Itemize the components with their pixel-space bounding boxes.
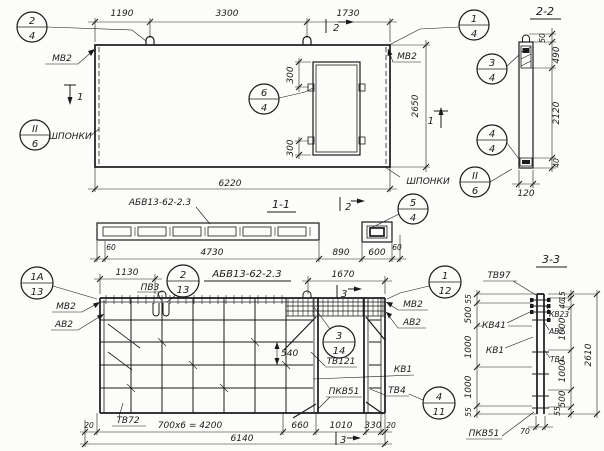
callout-1-4: 1 4 — [389, 10, 489, 45]
callout-num: 3 — [489, 58, 495, 69]
section-3-3: 3-3 55 500 1000 1000 55 15 40 1000 1000 … — [464, 253, 600, 439]
dim-2120: 2120 — [552, 101, 562, 124]
callout-num: II — [32, 124, 38, 135]
callout-num: 5 — [410, 198, 416, 209]
leader-line — [53, 286, 97, 299]
dim-120: 120 — [517, 189, 534, 199]
arrowhead — [88, 49, 95, 56]
label-text: АВ2 — [54, 320, 73, 330]
label-pkv51-elev: ПКВ51 — [317, 387, 362, 410]
door-opening-inner — [316, 65, 357, 152]
dim-660: 660 — [291, 421, 308, 431]
label-tv97: ТВ97 — [483, 271, 536, 295]
callout-num: 1 — [471, 14, 477, 25]
panel-mark-label: АБВ13-62-2.3 — [128, 198, 191, 208]
extension-lines — [95, 167, 390, 192]
door-opening — [313, 62, 360, 155]
dim-3300: 3300 — [216, 9, 239, 19]
reinforcement-elevation: 1130 1670 АБВ13-62-2.3 3 1А 13 МВ2 АВ2 — [21, 265, 461, 447]
dim-1190: 1190 — [111, 9, 134, 19]
dim-55-right: 55 — [553, 406, 562, 416]
callout-den: 6 — [32, 139, 38, 150]
label-mv2-elev-right: МВ2 — [386, 300, 428, 310]
plan-view: 1190 3300 1730 2 6220 2650 300 300 2 4 — [17, 9, 512, 197]
label-kv1-33: КВ1 — [486, 337, 533, 356]
callout-den: 6 — [472, 186, 478, 197]
label-text: АВ2 — [548, 327, 564, 336]
callout-5-4: 5 4 — [371, 194, 428, 228]
leader-line — [314, 307, 330, 329]
drawing-canvas: 1190 3300 1730 2 6220 2650 300 300 2 4 — [0, 0, 604, 451]
panel-outline — [95, 45, 390, 167]
end-block-void — [370, 228, 384, 236]
callout-shponki-right: ШПОНКИ II 6 — [385, 167, 512, 197]
cage-rungs — [532, 300, 549, 408]
label-shponki: ШПОНКИ — [406, 177, 450, 187]
extension-lines — [295, 62, 311, 155]
leader-line — [507, 55, 519, 66]
extension-lines — [390, 45, 430, 167]
dim-1730: 1730 — [337, 9, 360, 19]
section-marker-2: 2 — [340, 197, 365, 213]
dim-55-top: 55 — [464, 294, 473, 304]
section-marker-1-right: 1 — [428, 107, 448, 128]
callout-den: 11 — [433, 407, 446, 418]
dim-300-top: 300 — [286, 66, 296, 83]
label-text: ТВ4 — [550, 355, 565, 364]
label-mv2-left: МВ2 — [45, 49, 95, 64]
label-text: МВ2 — [397, 52, 417, 62]
callout-num: 3 — [336, 331, 342, 342]
core-void — [103, 227, 131, 236]
callout-1a-13: 1А 13 — [21, 267, 97, 299]
dim-2610: 2610 — [584, 343, 594, 366]
section-marker-label: 2 — [333, 23, 339, 34]
core-void — [173, 227, 201, 236]
callout-num: 6 — [261, 88, 267, 99]
callout-num: 4 — [489, 129, 495, 140]
section-marker-1-left: 1 — [64, 85, 83, 105]
hairpin-pv3 — [153, 303, 169, 316]
web-ticks — [135, 227, 310, 236]
embed-detail — [523, 48, 530, 53]
callout-1-12: 1 12 — [387, 266, 461, 299]
core-void — [243, 227, 271, 236]
label-text: ПКВ51 — [469, 429, 500, 439]
callout-num: 4 — [436, 392, 442, 403]
dim-60-left: 60 — [106, 243, 116, 252]
corner-diagonal-bars — [108, 324, 140, 370]
dim-20-left: 20 — [84, 421, 94, 430]
label-text: ПКВ51 — [329, 387, 360, 397]
callout-den: 4 — [261, 103, 267, 114]
label-text: МВ2 — [52, 54, 72, 64]
dim-6220: 6220 — [219, 179, 242, 189]
section-marker-2: 2 — [326, 19, 354, 34]
callout-3-14: 3 14 — [314, 307, 355, 358]
leader-line — [507, 143, 519, 159]
dim-4730: 4730 — [201, 248, 224, 258]
lintel-stirrup-ticks — [288, 299, 383, 316]
leader-line — [47, 27, 146, 41]
label-text: МВ2 — [56, 302, 76, 312]
dim-600: 600 — [368, 248, 385, 258]
arrowhead — [93, 302, 100, 308]
dim-490: 490 — [552, 46, 562, 63]
arrowhead — [386, 302, 393, 308]
label-text: КВ1 — [486, 346, 504, 356]
section-marker-label: 1 — [77, 92, 83, 103]
callout-num: II — [472, 171, 478, 182]
leader-line — [389, 27, 459, 45]
chord-stirrup-ticks — [106, 295, 282, 304]
label-tv72: ТВ72 — [112, 403, 146, 426]
section-title: 3-3 — [542, 253, 560, 266]
dim-500-right: 500 — [558, 390, 568, 407]
callout-num: 2 — [180, 270, 186, 281]
label-text: ТВ97 — [487, 271, 510, 281]
section-marker-label: 3 — [341, 289, 347, 300]
dim-540: 540 — [281, 349, 298, 359]
dim-50: 50 — [538, 33, 547, 43]
label-shponki: ШПОНКИ — [48, 132, 92, 142]
lintel-bars — [286, 306, 385, 316]
dim-55-bottom: 55 — [464, 407, 473, 417]
dim-330: 330 — [364, 421, 381, 431]
dim-1130: 1130 — [116, 268, 139, 278]
callout-den: 4 — [489, 144, 495, 155]
label-text: КВ23 — [549, 310, 569, 319]
dim-40: 40 — [558, 299, 567, 309]
section-1-1: 1-1 АБВ13-62-2.3 2 5 4 — [90, 194, 428, 262]
label-text: КВ41 — [482, 321, 506, 331]
dim-60-right: 60 — [392, 243, 402, 252]
callout-shponki-left: II 6 ШПОНКИ — [20, 120, 99, 150]
dim-1000-left-a: 1000 — [464, 335, 474, 358]
callout-num: 2 — [29, 16, 35, 27]
callout-den: 4 — [410, 213, 416, 224]
arrowhead — [386, 312, 392, 319]
dim-1000-left-b: 1000 — [464, 375, 474, 398]
elevation-heading: АБВ13-62-2.3 — [211, 269, 281, 280]
label-tv4-33: ТВ4 — [545, 351, 565, 364]
label-mv2-elev-left: МВ2 — [52, 302, 100, 312]
label-text: ТВ121 — [327, 357, 356, 367]
callout-den: 14 — [333, 346, 346, 357]
callout-4-11: 4 11 — [409, 387, 455, 419]
label-text: ТВ72 — [116, 416, 139, 426]
section-2-2: 2-2 50 490 2120 40 120 3 4 — [477, 5, 562, 199]
label-mv2-right: МВ2 — [388, 49, 422, 62]
callout-den: 4 — [489, 73, 495, 84]
dim-890: 890 — [332, 248, 349, 258]
label-av2-elev-left: АВ2 — [51, 314, 104, 330]
dim-500-left: 500 — [464, 306, 474, 323]
engineering-drawing-sheet: 1190 3300 1730 2 6220 2650 300 300 2 4 — [0, 0, 604, 451]
callout-3-4: 3 4 — [477, 54, 519, 84]
extension-lines — [97, 235, 400, 262]
dim-6140: 6140 — [231, 434, 254, 444]
dim-40: 40 — [552, 158, 561, 168]
callout-4-4: 4 4 — [477, 125, 519, 159]
label-kv41: КВ41 — [482, 311, 532, 331]
section-marker-label: 3 — [340, 435, 346, 446]
callout-den: 4 — [471, 29, 477, 40]
section-title: 1-1 — [272, 198, 290, 211]
lifting-loop-icon — [523, 35, 530, 42]
leader-line — [409, 394, 423, 400]
label-av2-elev-right: АВ2 — [386, 312, 426, 328]
leader-line — [196, 207, 210, 224]
anchor-dot — [547, 298, 551, 302]
extension-lines — [519, 170, 533, 188]
callout-num: 1А — [30, 272, 43, 283]
anchor-dot — [530, 298, 534, 302]
dim-20-right: 20 — [386, 421, 396, 430]
leader-line — [387, 286, 429, 299]
dim-1010: 1010 — [330, 421, 353, 431]
leader-line — [385, 167, 400, 177]
embed-detail — [522, 160, 530, 164]
label-text: МВ2 — [403, 300, 423, 310]
section-title: 2-2 — [536, 5, 554, 18]
callout-6-4: 6 4 — [249, 84, 313, 114]
core-void — [278, 227, 306, 236]
callout-den: 13 — [177, 285, 190, 296]
core-void — [208, 227, 236, 236]
label-text: АВ2 — [402, 318, 421, 328]
anchor-dot — [530, 304, 534, 308]
leader-line — [490, 169, 512, 182]
section-marker-label: 1 — [428, 116, 434, 127]
callout-den: 4 — [29, 31, 35, 42]
label-text: ТВ4 — [388, 386, 406, 396]
section-marker-label: 2 — [345, 202, 351, 213]
dim-2650: 2650 — [411, 94, 421, 117]
dim-1670: 1670 — [332, 270, 355, 280]
callout-den: 12 — [439, 286, 452, 297]
dim-300-bottom: 300 — [286, 139, 296, 156]
callout-den: 13 — [31, 287, 44, 298]
anchor-dot — [547, 304, 551, 308]
dim-70: 70 — [520, 427, 530, 436]
callout-num: 1 — [442, 271, 448, 282]
core-void — [138, 227, 166, 236]
label-text: ПВ3 — [141, 283, 160, 293]
dim-700x6: 700х6 = 4200 — [158, 421, 223, 431]
label-text: КВ1 — [394, 365, 412, 375]
